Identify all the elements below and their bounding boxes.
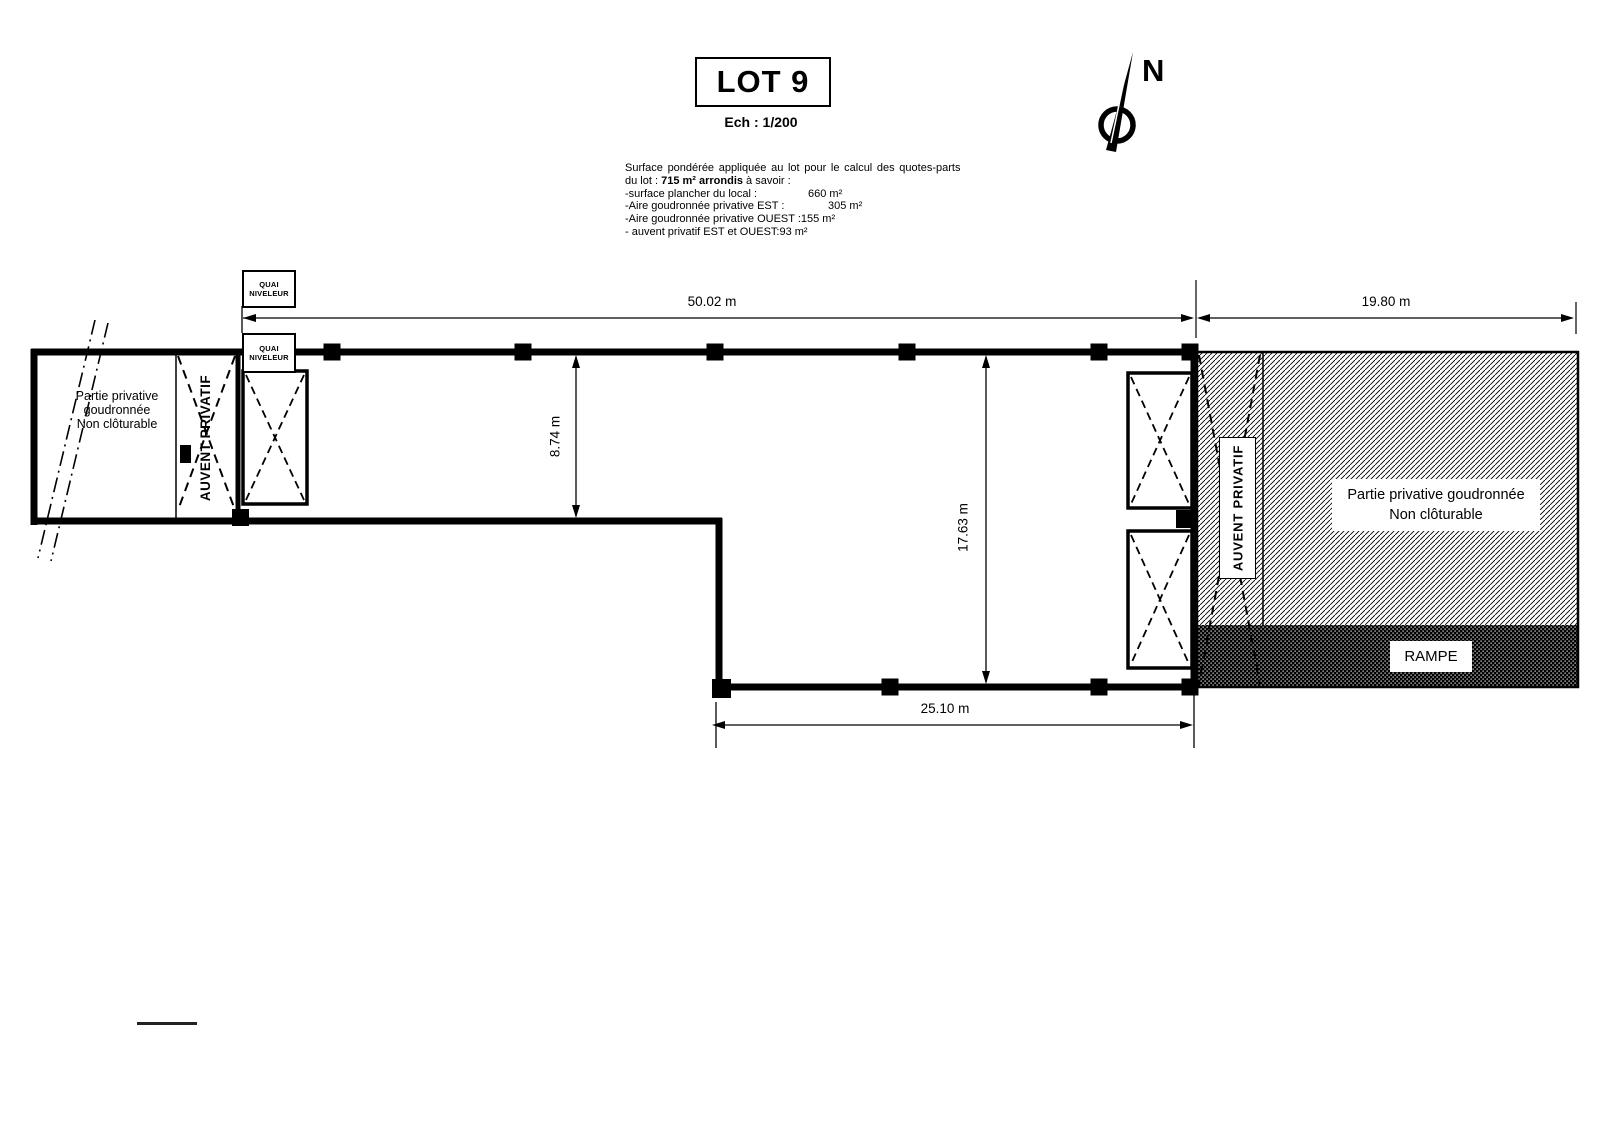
quai-niveleur-box-upper: QUAI NIVELEUR xyxy=(242,270,296,308)
surface-note-item: -Aire goudronnée privative OUEST : 155 m… xyxy=(625,213,969,226)
dock-bay-east-upper xyxy=(1128,373,1192,508)
surface-note: Surface pondérée appliquée au lot pour l… xyxy=(625,162,969,239)
floor-plan-page: LOT 9 Ech : 1/200 N Surface pondérée app… xyxy=(0,0,1600,1130)
dimension-east-height: 17.63 m xyxy=(956,478,973,578)
lot-title-text: LOT 9 xyxy=(717,64,810,100)
surface-note-line2: du lot : 715 m² arrondis à savoir : xyxy=(625,175,969,188)
dimension-bottom-width: 25.10 m xyxy=(895,701,995,716)
rampe-label: RAMPE xyxy=(1390,641,1472,672)
footer-line xyxy=(137,1022,197,1025)
lot-title: LOT 9 xyxy=(695,57,831,107)
dimension-east-width: 19.80 m xyxy=(1336,294,1436,309)
dimension-top-width: 50.02 m xyxy=(662,294,762,309)
dimension-west-height: 8.74 m xyxy=(548,387,565,487)
north-arrow-icon xyxy=(1101,52,1133,152)
scale-label: Ech : 1/200 xyxy=(675,114,847,130)
quai-niveleur-box-lower: QUAI NIVELEUR xyxy=(242,333,296,373)
dock-bay-east-lower xyxy=(1128,531,1192,668)
west-area-label: Partie privative goudronnée Non clôturab… xyxy=(40,389,194,431)
north-label: N xyxy=(1142,53,1164,89)
dock-bay-west xyxy=(243,371,307,504)
break-lines xyxy=(38,320,108,561)
east-area-label: Partie privative goudronnée Non clôturab… xyxy=(1332,479,1540,531)
auvent-privatif-east-label: AUVENT PRIVATIF xyxy=(1219,437,1256,579)
door-marker xyxy=(180,445,191,463)
surface-note-item: -Aire goudronnée privative EST : 305 m² xyxy=(625,200,969,213)
surface-note-item: - auvent privatif EST et OUEST: 93 m² xyxy=(625,226,969,239)
surface-note-line1: Surface pondérée appliquée au lot pour l… xyxy=(625,162,969,175)
auvent-privatif-west-label: AUVENT PRIVATIF xyxy=(198,368,216,508)
surface-note-item: -surface plancher du local : 660 m² xyxy=(625,188,969,201)
